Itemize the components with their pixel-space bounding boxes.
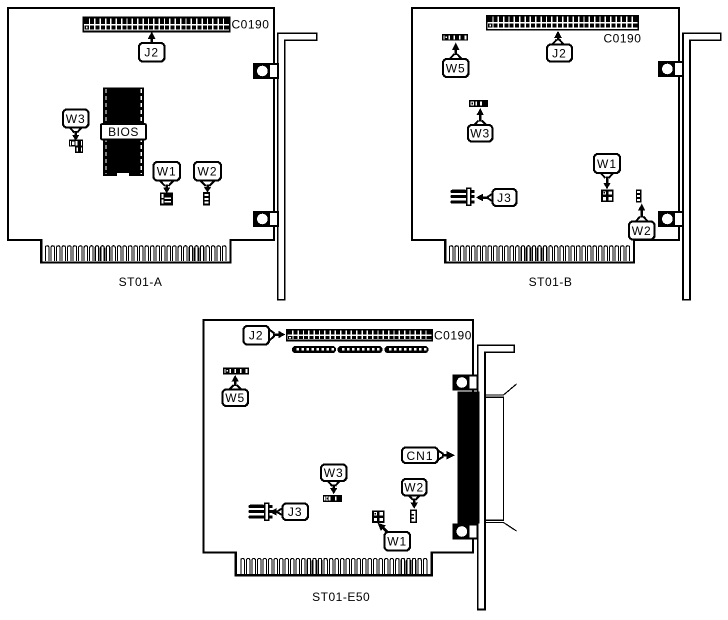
svg-text:W1: W1 [597, 157, 617, 171]
svg-text:W1: W1 [387, 535, 407, 549]
svg-text:C0190: C0190 [604, 32, 642, 46]
svg-text:W1: W1 [157, 165, 177, 179]
svg-text:W2: W2 [198, 165, 218, 179]
svg-text:C0190: C0190 [434, 329, 472, 343]
svg-text:J2: J2 [249, 329, 264, 343]
svg-text:ST01-B: ST01-B [529, 275, 573, 289]
svg-text:C0190: C0190 [232, 18, 270, 32]
svg-text:J3: J3 [288, 505, 303, 519]
svg-text:W2: W2 [404, 481, 424, 495]
svg-text:J2: J2 [144, 46, 159, 60]
svg-text:BIOS: BIOS [108, 125, 139, 139]
svg-text:W5: W5 [225, 391, 245, 405]
svg-text:J2: J2 [552, 46, 567, 60]
svg-text:CN1: CN1 [406, 449, 433, 463]
svg-text:ST01-A: ST01-A [119, 275, 163, 289]
svg-text:W5: W5 [446, 61, 466, 75]
svg-text:W3: W3 [66, 112, 86, 126]
svg-text:J3: J3 [497, 191, 512, 205]
svg-text:W3: W3 [324, 466, 344, 480]
svg-text:W3: W3 [470, 127, 490, 141]
svg-text:W2: W2 [632, 224, 652, 238]
svg-text:ST01-E50: ST01-E50 [312, 590, 370, 604]
